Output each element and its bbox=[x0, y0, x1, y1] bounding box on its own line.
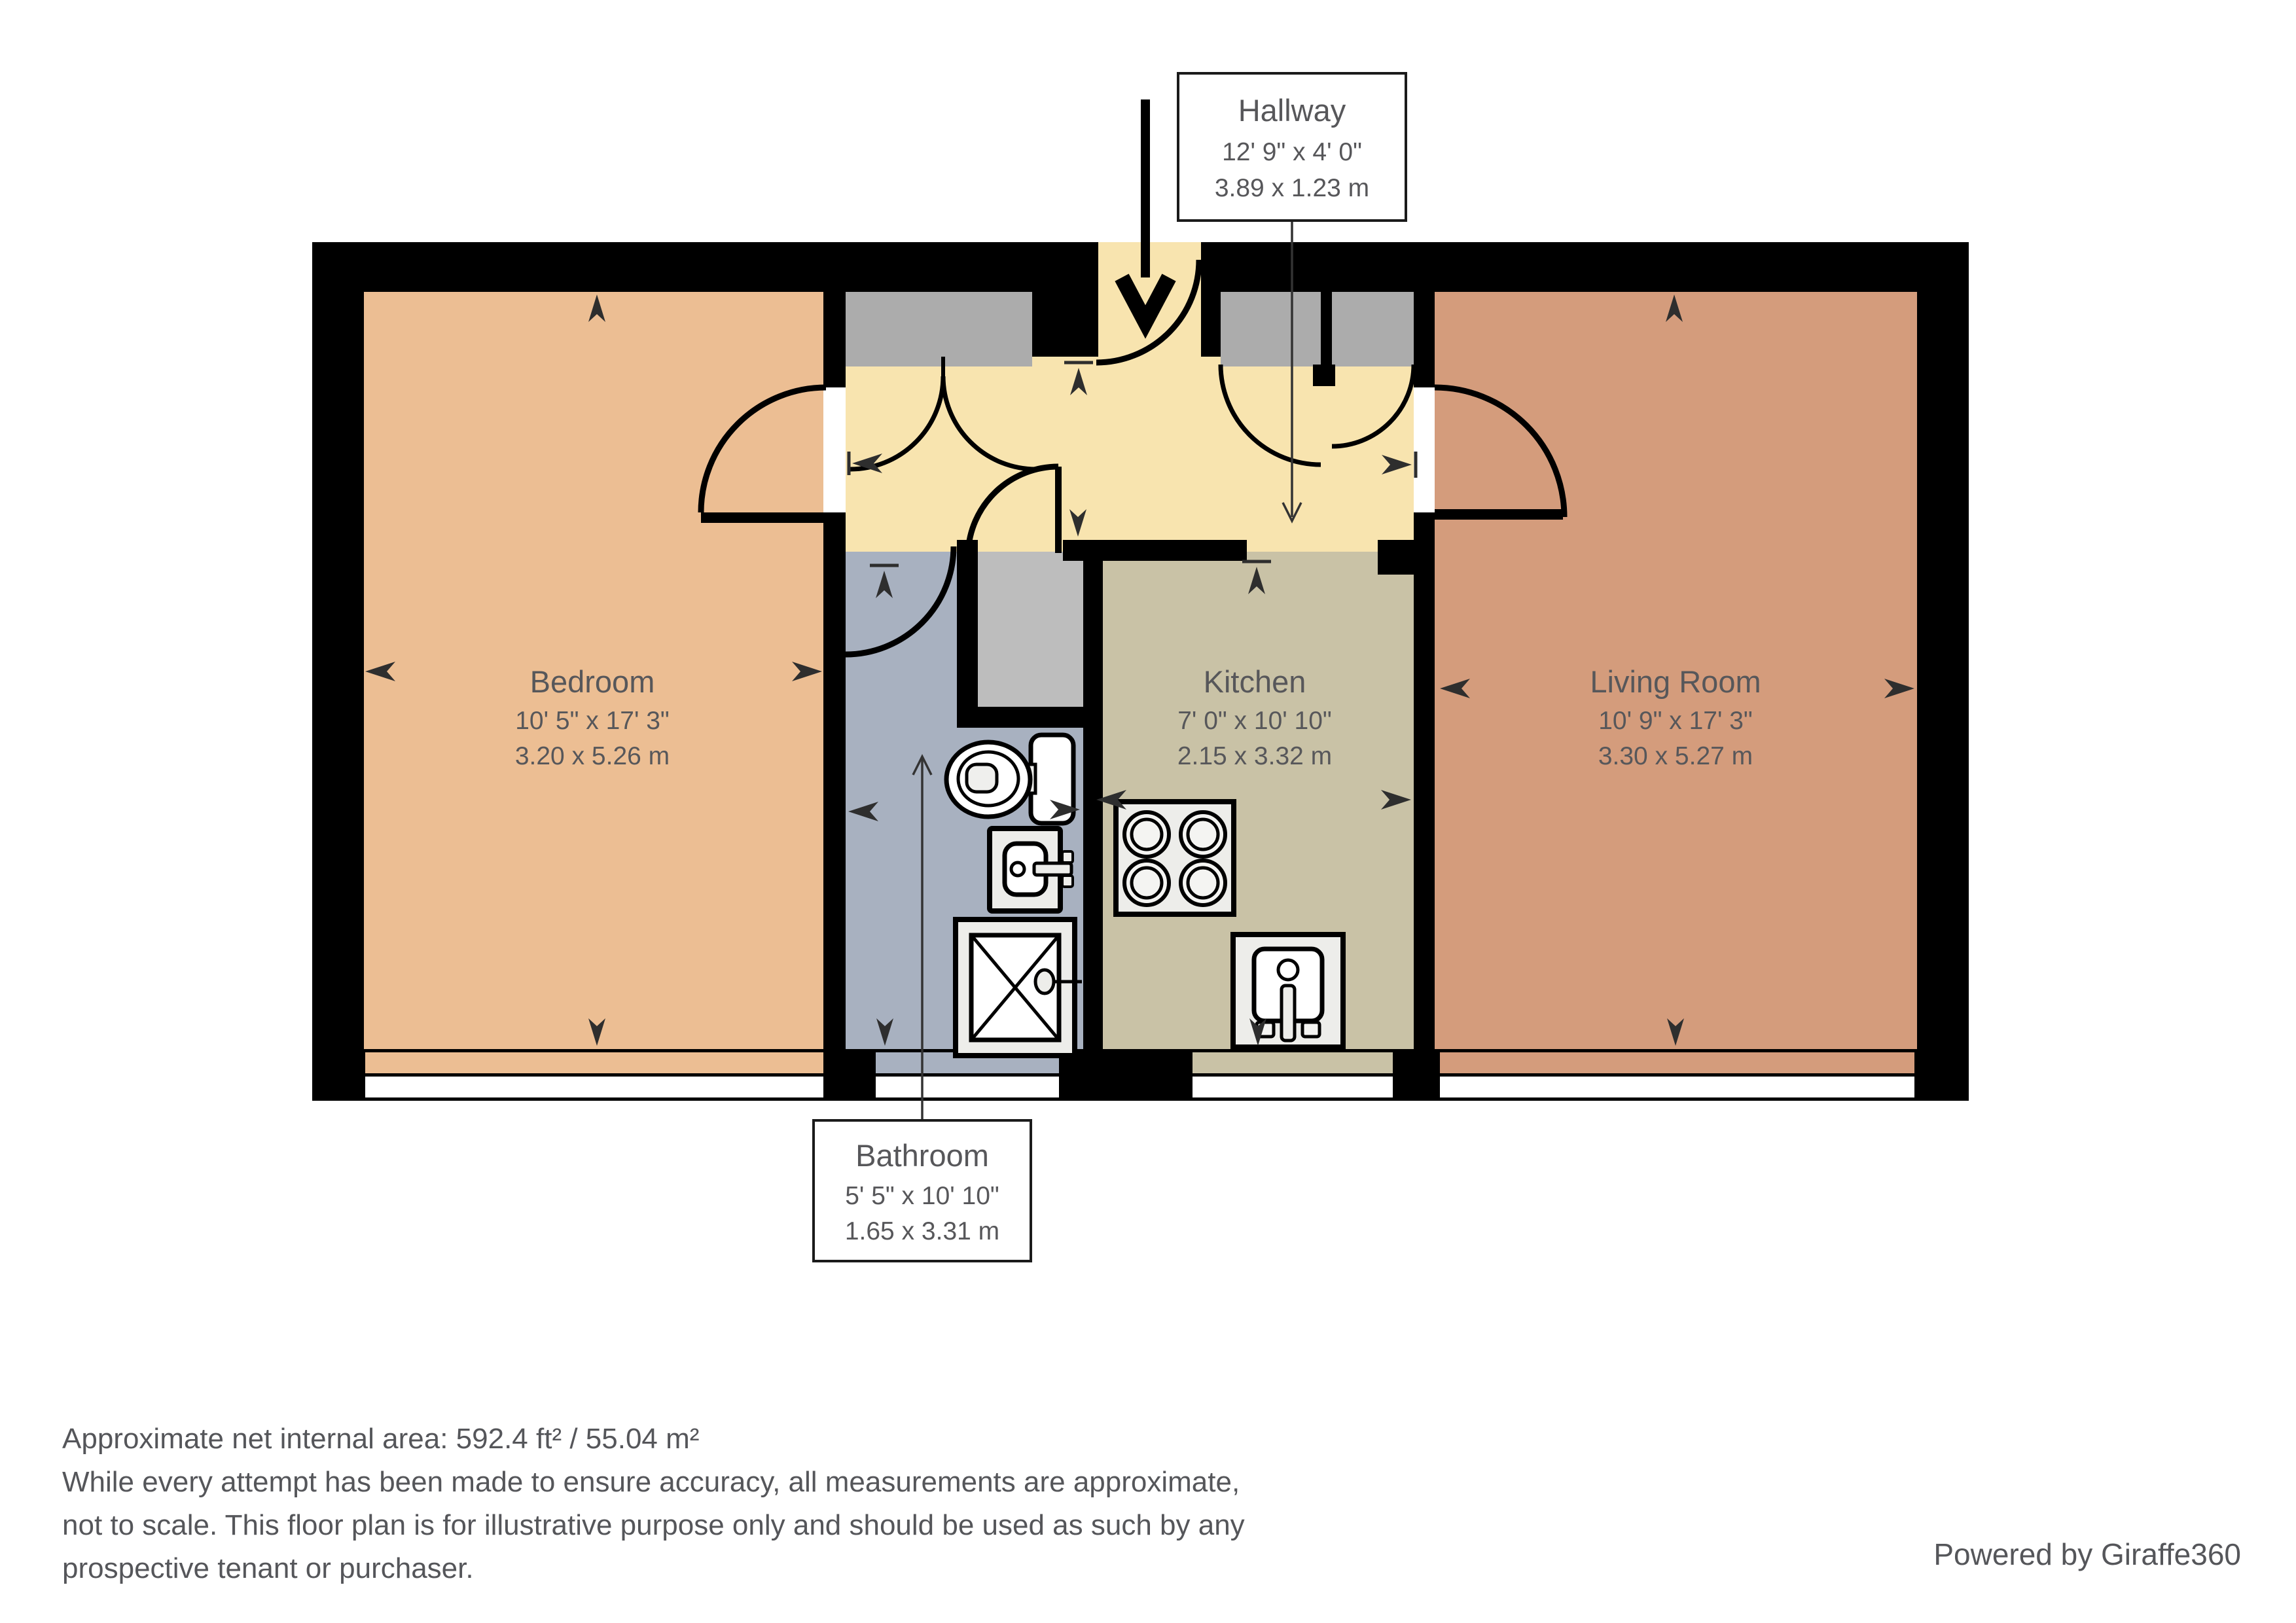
wall-bottom-seg bbox=[1059, 1049, 1193, 1101]
window-bedroom bbox=[365, 1049, 823, 1101]
stove bbox=[1116, 802, 1234, 914]
hallway-callout: Hallway 12' 9" x 4' 0" 3.89 x 1.23 m bbox=[1178, 73, 1406, 221]
bathroom-sink-tap bbox=[1062, 851, 1073, 863]
footer-disclaimer-line: While every attempt has been made to ens… bbox=[62, 1461, 1306, 1504]
bathroom-callout: Bathroom 5' 5" x 10' 10" 1.65 x 3.31 m bbox=[814, 1120, 1031, 1261]
wall-closet-mid-bottom bbox=[957, 707, 1103, 728]
footer-area-line: Approximate net internal area: 592.4 ft²… bbox=[62, 1418, 1306, 1461]
bathroom-dims-imperial: 5' 5" x 10' 10" bbox=[845, 1182, 999, 1210]
kitchen-sink bbox=[1233, 935, 1343, 1047]
closet-left-floor bbox=[846, 292, 1032, 366]
bathroom-dims-metric: 1.65 x 3.31 m bbox=[845, 1217, 999, 1245]
bedroom-label: Bedroom 10' 5" x 17' 3" 3.20 x 5.26 m bbox=[515, 664, 670, 770]
toilet bbox=[946, 735, 1073, 823]
wall-bottom-seg bbox=[312, 1049, 365, 1101]
kitchen-name: Kitchen bbox=[1204, 664, 1306, 699]
wall-top-left bbox=[312, 242, 1098, 292]
wall-living-upper bbox=[1414, 292, 1435, 387]
kitchen-dims-metric: 2.15 x 3.32 m bbox=[1177, 742, 1332, 770]
hallway-dims-metric: 3.89 x 1.23 m bbox=[1215, 174, 1369, 202]
closet-mid-floor bbox=[978, 552, 1083, 707]
toilet-inner bbox=[967, 764, 997, 792]
entry-arrow-shaft bbox=[1141, 99, 1150, 277]
living-room-dims-metric: 3.30 x 5.27 m bbox=[1598, 742, 1753, 770]
living-room-dims-imperial: 10' 9" x 17' 3" bbox=[1598, 707, 1753, 735]
wall-entry-pier-left bbox=[1032, 242, 1098, 357]
footer-disclaimer: Approximate net internal area: 592.4 ft²… bbox=[62, 1418, 1306, 1590]
living-room-name: Living Room bbox=[1590, 664, 1761, 699]
kitchen-dims-imperial: 7' 0" x 10' 10" bbox=[1177, 707, 1332, 735]
window-living-room bbox=[1440, 1049, 1914, 1101]
wall-closet-mid-left bbox=[957, 540, 978, 728]
bathroom-sink-faucet bbox=[1034, 863, 1071, 875]
bedroom-dims-metric: 3.20 x 5.26 m bbox=[515, 742, 670, 770]
closet-right2-floor bbox=[1332, 292, 1414, 366]
wall-bottom-seg bbox=[1914, 1049, 1969, 1101]
wall-bedroom-lower bbox=[823, 512, 846, 1049]
hallway-name: Hallway bbox=[1238, 93, 1346, 128]
bathroom-name: Bathroom bbox=[855, 1138, 989, 1173]
wall-passage-pier bbox=[1378, 540, 1414, 575]
floor-plan: Bedroom 10' 5" x 17' 3" 3.20 x 5.26 m Ki… bbox=[0, 0, 2296, 1623]
footer-disclaimer-line: not to scale. This floor plan is for ill… bbox=[62, 1504, 1306, 1547]
shower bbox=[956, 919, 1082, 1056]
bedroom-name: Bedroom bbox=[530, 664, 655, 699]
wall-closet-divider-stub bbox=[1313, 365, 1335, 386]
footer-disclaimer-line: prospective tenant or purchaser. bbox=[62, 1547, 1306, 1590]
wall-closet-divider bbox=[1321, 292, 1332, 365]
wall-bedroom-upper bbox=[823, 292, 846, 387]
kitchen-sink-tap bbox=[1302, 1022, 1319, 1037]
wall-top-right bbox=[1201, 242, 1969, 292]
kitchen-sink-faucet bbox=[1282, 986, 1295, 1041]
bedroom-dims-imperial: 10' 5" x 17' 3" bbox=[515, 707, 670, 735]
living-door-leaf bbox=[1435, 509, 1563, 520]
wall-right bbox=[1917, 242, 1969, 1101]
powered-by-label: Powered by Giraffe360 bbox=[1933, 1537, 2241, 1572]
bathroom-sink-tap bbox=[1062, 876, 1073, 887]
window-kitchen bbox=[1193, 1049, 1393, 1101]
room-floors bbox=[364, 242, 1917, 1049]
hallway-dims-imperial: 12' 9" x 4' 0" bbox=[1222, 138, 1362, 166]
shower-handle bbox=[1035, 970, 1054, 993]
wall-bottom-seg bbox=[1393, 1049, 1440, 1101]
living-room-label: Living Room 10' 9" x 17' 3" 3.30 x 5.27 … bbox=[1590, 664, 1761, 770]
wall-bottom-seg bbox=[823, 1049, 876, 1101]
wall-left bbox=[312, 242, 364, 1101]
closet-right1-floor bbox=[1221, 292, 1321, 366]
bathroom-sink bbox=[990, 829, 1073, 911]
wall-entry-pier-right bbox=[1201, 242, 1221, 357]
wall-living-lower bbox=[1414, 512, 1435, 1049]
bedroom-door-leaf bbox=[701, 512, 826, 523]
